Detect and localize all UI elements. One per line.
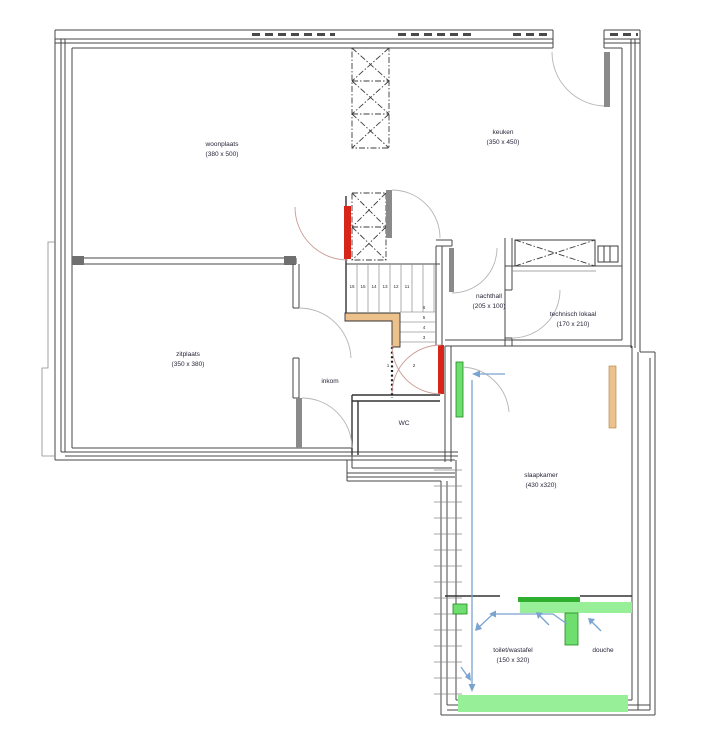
room-label-technisch-lokaal: technisch lokaal (170 x 210): [550, 310, 596, 330]
ventilation-unit: [515, 240, 618, 266]
doors: [295, 52, 610, 448]
room-name: keuken: [487, 128, 520, 138]
chimney-shaft-middle: [352, 193, 386, 260]
stair-step-number: 11: [405, 284, 410, 289]
room-label-keuken: keuken (350 x 450): [487, 128, 520, 148]
floorplan-drawing: [0, 0, 705, 736]
stair-step-number: 14: [371, 284, 376, 289]
room-dim: (150 x 320): [493, 656, 532, 666]
door-leaf-inkom: [296, 398, 302, 448]
douche-partition: [565, 613, 578, 645]
stair-step-number: 12: [393, 284, 398, 289]
room-name: douche: [592, 646, 613, 656]
room-dim: (350 x 380): [172, 360, 205, 370]
chimney-shaft-top: [352, 48, 389, 148]
stair-step-number: 1: [387, 363, 390, 368]
room-label-zitplaats: zitplaats (350 x 380): [172, 350, 205, 370]
stair-landing: [345, 313, 400, 347]
room-dim: (380 x 500): [206, 150, 239, 160]
bottom-window: [458, 695, 628, 712]
room-name: slaapkamer: [524, 471, 558, 481]
stair-step-number: 13: [382, 284, 387, 289]
floorplan: woonplaats (380 x 500) keuken (350 x 450…: [0, 0, 705, 736]
door-leaf-red-shaft: [344, 206, 351, 259]
room-label-inkom: inkom: [321, 377, 338, 387]
room-name: inkom: [321, 377, 338, 387]
douche-wall-edge: [518, 597, 580, 602]
room-label-toilet-wastafel: toilet/wastafel (150 x 320): [493, 646, 532, 666]
room-label-nachthall: nachthall (205 x 100): [473, 292, 506, 312]
room-dim: (430 x320): [524, 481, 558, 491]
room-name: WC: [399, 419, 410, 429]
room-name: toilet/wastafel: [493, 646, 532, 656]
stair-step-number: 3: [423, 335, 426, 340]
stair-step-number: 5: [423, 315, 426, 320]
room-label-slaapkamer: slaapkamer (430 x320): [524, 471, 558, 491]
room-name: zitplaats: [172, 350, 205, 360]
room-label-douche: douche: [592, 646, 613, 656]
door-leaf-back: [604, 52, 610, 107]
toilet-fixture: [453, 604, 467, 614]
room-dim: (205 x 100): [473, 302, 506, 312]
plumbing-annotations: [461, 371, 601, 693]
door-leaf-nachthall: [449, 248, 454, 292]
door-leaf-slaapkamer: [456, 362, 463, 417]
room-label-wc: WC: [399, 419, 410, 429]
wall-stub: [72, 256, 84, 265]
room-dim: (350 x 450): [487, 138, 520, 148]
room-name: technisch lokaal: [550, 310, 596, 320]
douche-wall: [520, 602, 632, 613]
stair-step-number: 16: [349, 284, 354, 289]
stair-step-number: 4: [423, 325, 426, 330]
room-name: nachthall: [473, 292, 506, 302]
stair-step-number: 6: [423, 305, 426, 310]
radiator-panel: [609, 366, 616, 428]
stair-step-number: 15: [360, 284, 365, 289]
door-leaf-red-hall: [438, 345, 444, 394]
room-label-woonplaats: woonplaats (380 x 500): [206, 140, 239, 160]
hatched-wall: [434, 460, 462, 715]
door-leaf-keuken: [386, 190, 392, 238]
wall-stub: [284, 256, 296, 265]
room-name: woonplaats: [206, 140, 239, 150]
room-dim: (170 x 210): [550, 320, 596, 330]
stair-step-number: 2: [413, 363, 416, 368]
